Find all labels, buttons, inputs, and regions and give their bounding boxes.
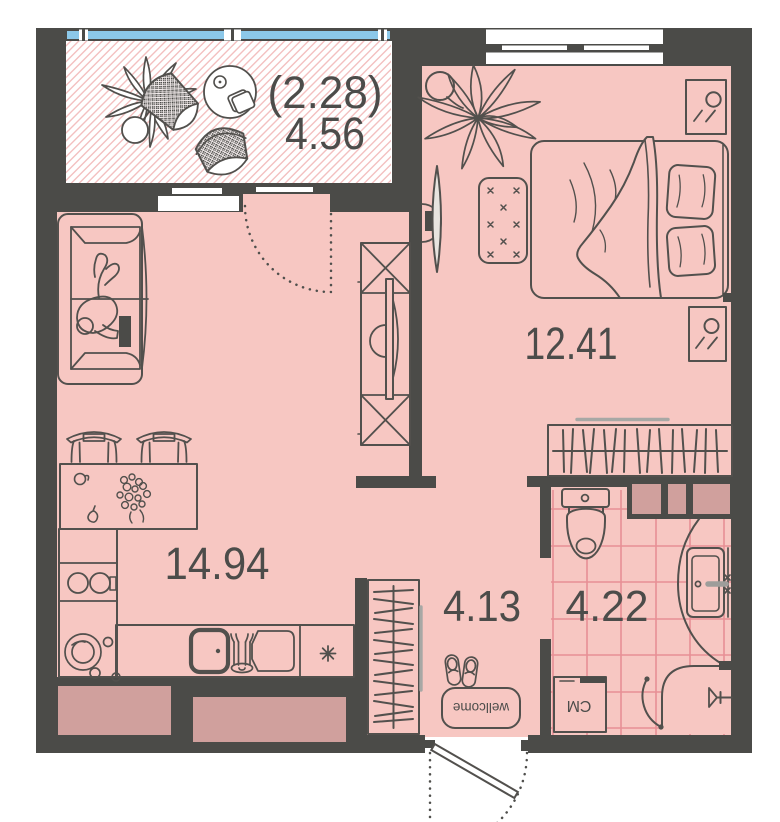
svg-text:4.56: 4.56 (285, 108, 365, 159)
svg-text:СМ: СМ (567, 697, 592, 714)
svg-text:wellcome: wellcome (453, 700, 510, 715)
svg-text:4.13: 4.13 (443, 582, 521, 631)
svg-text:12.41: 12.41 (525, 318, 618, 369)
svg-text:14.94: 14.94 (165, 538, 270, 589)
svg-text:4.22: 4.22 (566, 582, 649, 631)
